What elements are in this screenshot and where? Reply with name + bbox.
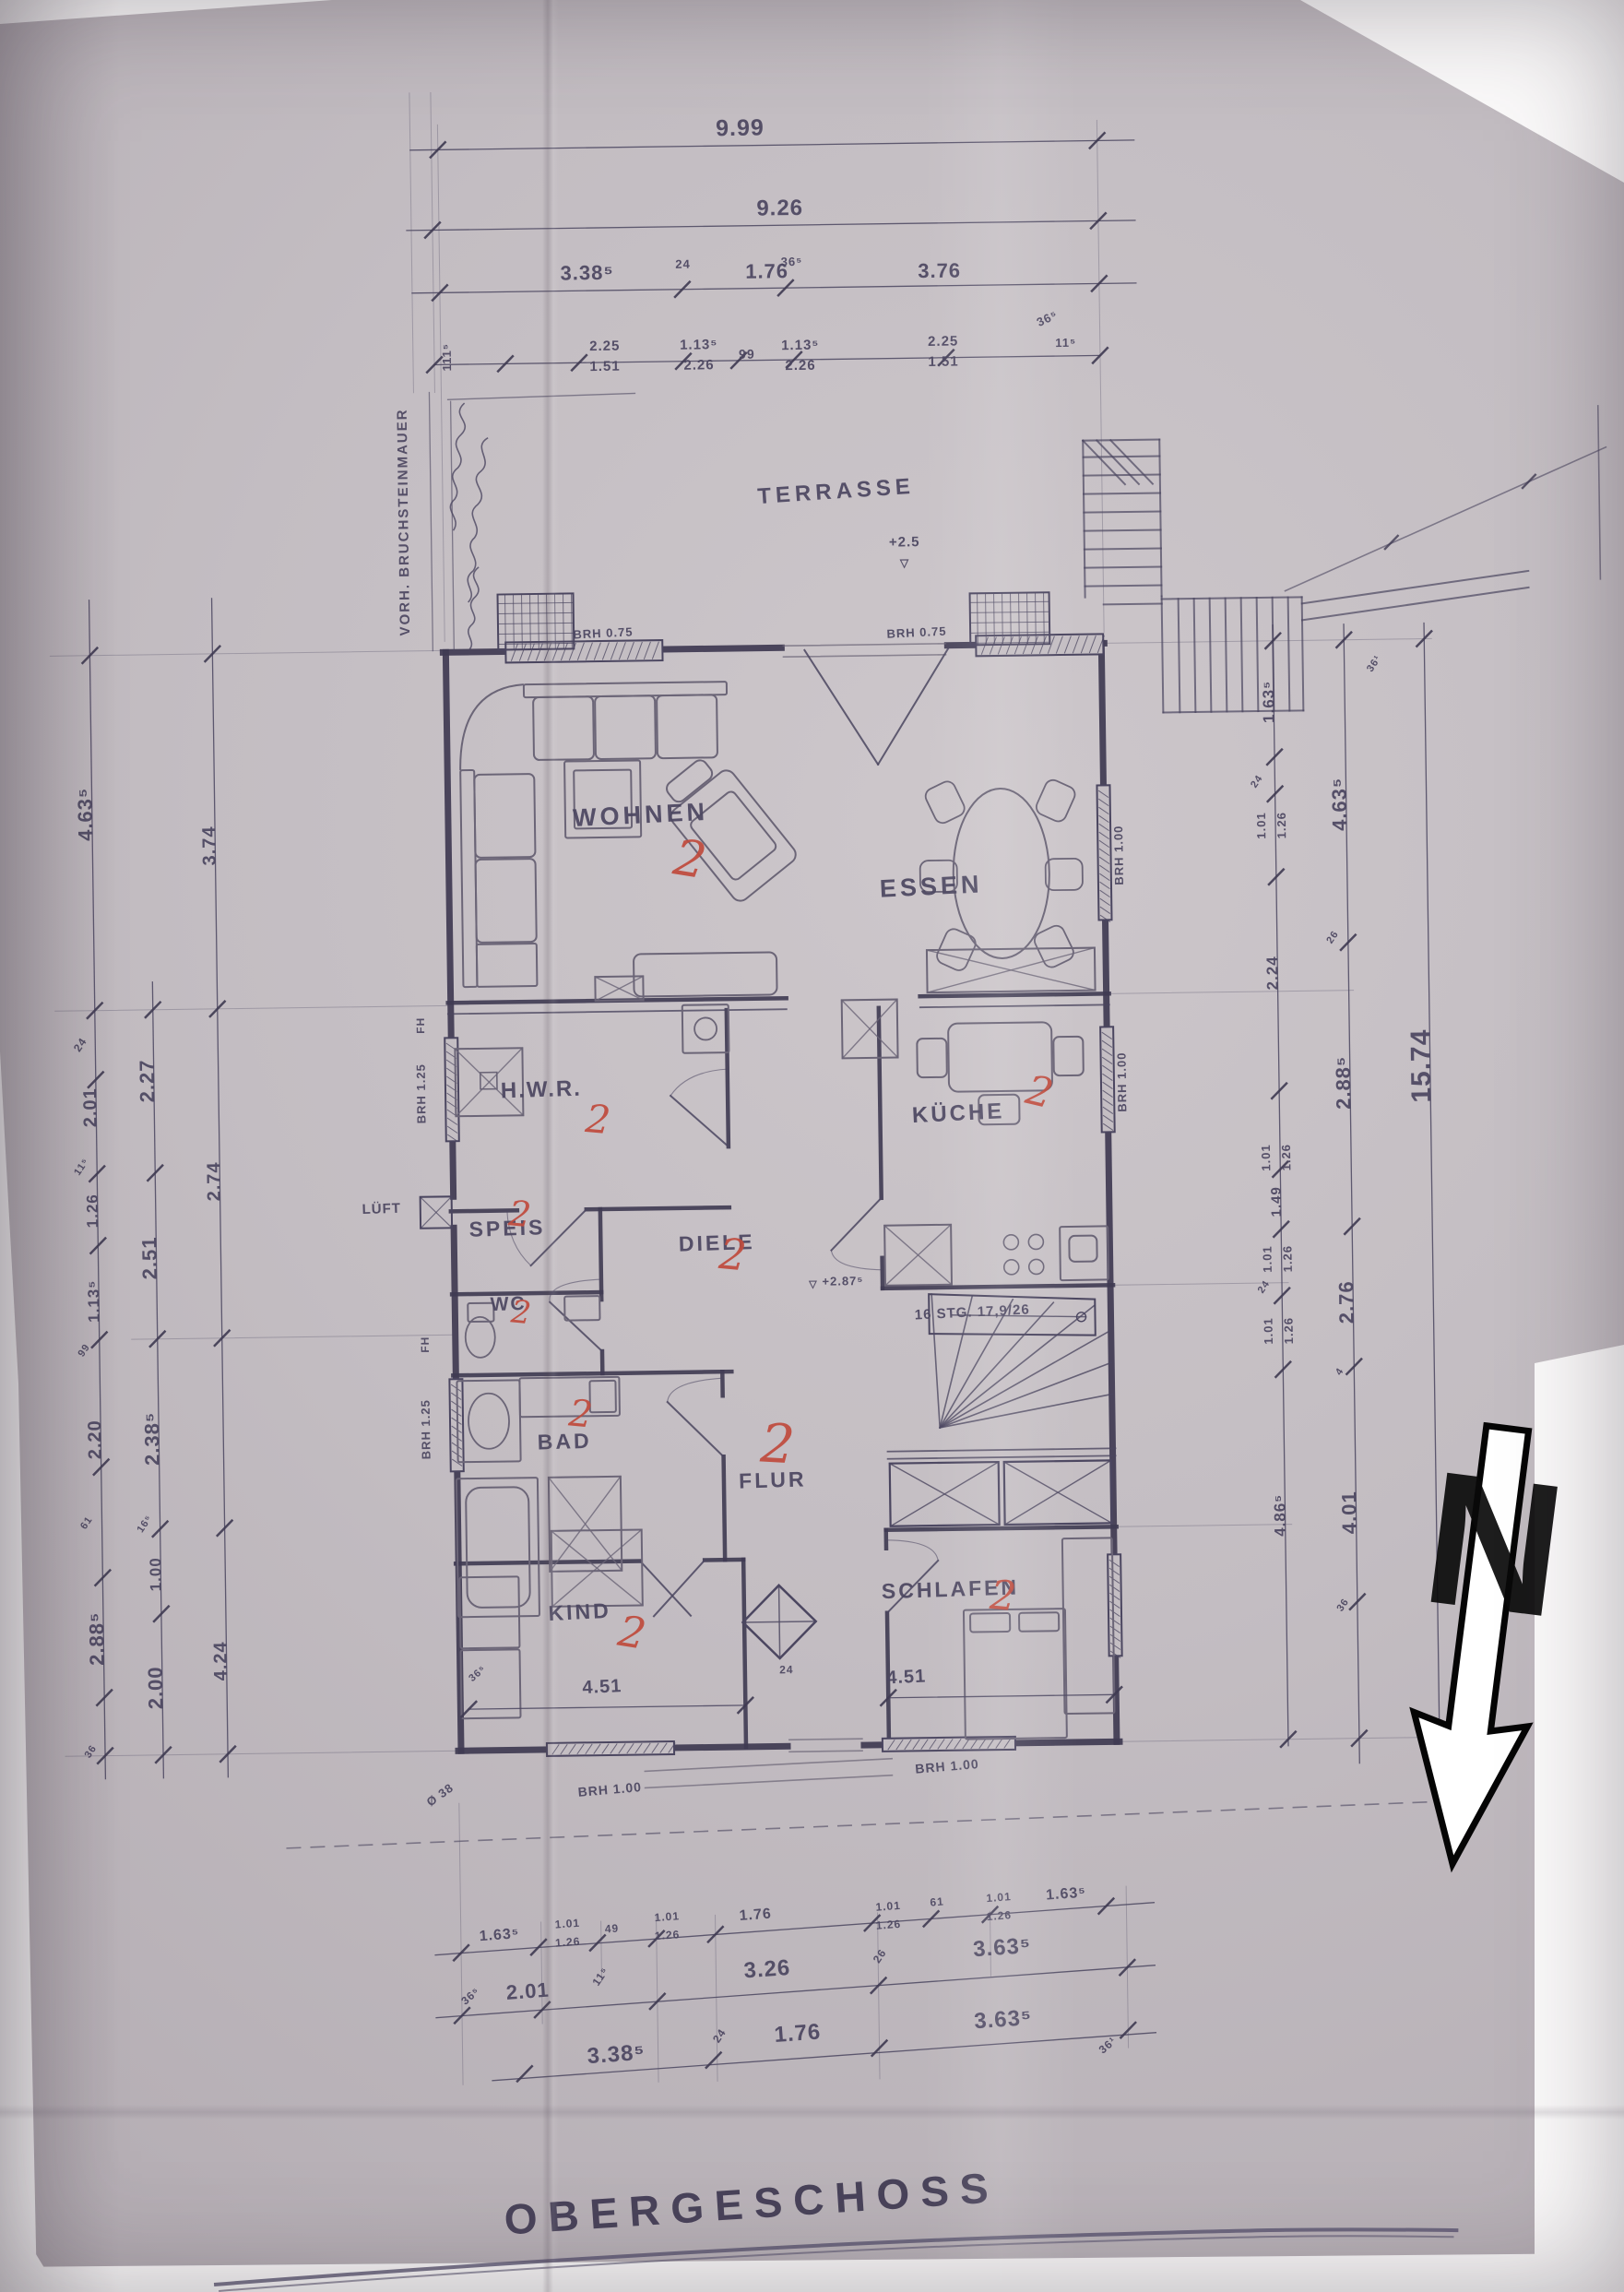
label-dims-d151: 1.51: [928, 354, 958, 370]
label-dims-d338a: 3.38⁵: [560, 261, 613, 285]
label-dims-d374: 3.74: [199, 825, 220, 865]
label-dims-d274: 2.74: [204, 1161, 225, 1201]
label-dims-s99: 99: [739, 347, 755, 362]
label-dims-d288: 2.88⁵: [1332, 1056, 1356, 1110]
label-notes-brh100: BRH 1.00: [1111, 825, 1126, 885]
label-rooms-kind: KIND: [548, 1598, 611, 1625]
label-rooms-lueft: LÜFT: [362, 1201, 401, 1217]
label-dims-d201: 2.01: [80, 1087, 101, 1127]
north-arrow: N: [1386, 1420, 1578, 1873]
label-dims-d201: 2.01: [505, 1978, 550, 2004]
title-underline: [213, 2227, 1459, 2291]
label-dims-s24a: 24: [1249, 773, 1265, 790]
label-notes-wall: VORH. BRUCHSTEINMAUER: [395, 408, 413, 635]
dimension-chains: [76, 128, 1452, 2086]
label-notes-brh125: BRH 1.25: [419, 1399, 433, 1459]
label-dims-d101: 1.01: [1254, 812, 1268, 839]
label-red_mark: 2: [1021, 1066, 1059, 1119]
label-dims-d338a: 3.38⁵: [587, 2040, 646, 2069]
plan-text-labels: OBERGESCHOSSTERRASSEWOHNENESSENH.W.R.KÜC…: [57, 105, 1452, 2250]
label-dims-d463: 4.63⁵: [1327, 778, 1351, 831]
label-notes-level2: +2.87⁵: [822, 1274, 863, 1289]
label-dims-s26: 26: [871, 1946, 889, 1965]
label-dims-s36a: 36⁵: [467, 1663, 488, 1683]
label-dims-d251: 2.51: [137, 1236, 161, 1279]
label-dims-s111: 111⁵: [440, 343, 454, 372]
label-rooms-wohnen: WOHNEN: [572, 798, 708, 832]
label-red_mark: 2: [717, 1229, 750, 1281]
label-dims-d224: 2.24: [1263, 956, 1282, 990]
label-dims-d363: 3.63⁵: [972, 1933, 1032, 1962]
label-dims-d238: 2.38⁵: [140, 1412, 164, 1466]
label-dims-d151: 1.51: [589, 359, 620, 374]
label-rooms-terrasse: TERRASSE: [757, 474, 916, 509]
label-dims-d126: 1.26: [84, 1194, 102, 1228]
label-dims-d101: 1.01: [1259, 1144, 1273, 1171]
witness-lines: [42, 78, 1452, 2090]
label-notes-brh125: BRH 1.25: [414, 1063, 429, 1123]
label-dims-s16b: 36¹: [1096, 2034, 1120, 2056]
label-dims-d126b: 1.26: [875, 1918, 901, 1932]
label-dims-d1574: 15.74: [1405, 1028, 1437, 1103]
staircases: [875, 406, 1621, 1526]
label-dims-s36c: 36: [1334, 1597, 1351, 1614]
label-dims-d926: 9.26: [756, 196, 803, 221]
label-dims-d225: 2.25: [589, 338, 620, 354]
label-dims-d363: 3.63⁵: [973, 2005, 1033, 2034]
label-dims-d126b: 1.26: [555, 1935, 581, 1950]
label-dims-s36a: 36⁵: [781, 255, 803, 268]
label-red_mark: 2: [583, 1096, 613, 1143]
label-red_mark: 2: [669, 827, 711, 890]
label-notes-brh075: BRH 0.75: [886, 624, 947, 641]
label-red_mark: 2: [758, 1411, 798, 1476]
label-dims-d113: 1.13⁵: [680, 337, 717, 353]
label-dims-d220: 2.20: [85, 1419, 106, 1459]
label-dims-d424: 4.24: [210, 1641, 231, 1680]
label-notes-fh: FH: [414, 1017, 427, 1034]
label-dims-s4: 4: [1334, 1366, 1346, 1378]
label-dims-d163: 1.63⁵: [1260, 681, 1278, 723]
label-title: OBERGESCHOSS: [503, 2163, 1001, 2244]
label-dims-d227: 2.27: [136, 1059, 160, 1102]
label-dims-d126b: 1.26: [1280, 1245, 1294, 1273]
label-notes-tri: ▽: [899, 556, 909, 569]
label-dims-d176a: 1.76: [774, 2019, 823, 2048]
label-notes-brh100: BRH 1.00: [915, 1756, 980, 1776]
label-dims-d486: 4.86⁵: [1271, 1494, 1289, 1537]
label-dims-d101: 1.01: [1262, 1317, 1275, 1345]
label-rooms-essen: ESSEN: [879, 870, 983, 902]
photographed-floor-plan: OBERGESCHOSSTERRASSEWOHNENESSENH.W.R.KÜC…: [0, 0, 1624, 2292]
label-notes-o38: Ø 38: [424, 1780, 456, 1809]
label-rooms-hwr: H.W.R.: [500, 1076, 582, 1104]
label-dims-s11: 11⁵: [589, 1965, 611, 1989]
label-dims-d113: 1.13⁵: [781, 338, 819, 354]
label-dims-d126b: 1.26: [1274, 812, 1288, 839]
label-dims-d126b: 1.26: [1282, 1317, 1296, 1345]
label-notes-level1: +2.5: [889, 534, 920, 550]
label-dims-d226: 2.26: [683, 357, 714, 373]
label-dims-d176a: 1.76: [739, 1906, 772, 1924]
label-dims-s61: 61: [78, 1514, 95, 1532]
label-north: N: [1414, 1431, 1577, 1657]
label-dims-d163: 1.63⁵: [479, 1926, 520, 1944]
label-red_mark: 2: [614, 1606, 651, 1659]
label-notes-brh075: BRH 0.75: [573, 624, 634, 641]
label-red_mark: 2: [506, 1193, 534, 1235]
label-dims-d225: 2.25: [928, 334, 958, 350]
label-dims-s24a: 24: [779, 1663, 794, 1676]
stone-wall-scribble: [429, 389, 638, 650]
label-dims-d451: 4.51: [582, 1676, 622, 1698]
label-dims-s49: 49: [604, 1921, 619, 1935]
windows: [439, 586, 1124, 1757]
label-dims-s24a: 24: [675, 257, 691, 271]
label-notes-brh100: BRH 1.00: [577, 1779, 643, 1799]
label-dims-s16b: 36¹: [1365, 653, 1384, 673]
label-dims-d226: 2.26: [785, 358, 815, 374]
label-dims-d999: 9.99: [716, 114, 765, 141]
label-notes-brh100: BRH 1.00: [1115, 1052, 1130, 1112]
label-dims-d326: 3.26: [743, 1955, 792, 1984]
label-dims-d126b: 1.26: [1279, 1144, 1293, 1171]
label-notes-fh: FH: [419, 1336, 432, 1353]
label-dims-d401: 4.01: [1337, 1490, 1361, 1534]
label-dims-s24a: 24: [710, 2026, 729, 2046]
label-dims-s36c: 36: [83, 1743, 100, 1761]
label-dims-d463: 4.63⁵: [73, 788, 97, 841]
label-dims-d100: 1.00: [147, 1557, 165, 1591]
label-dims-d101: 1.01: [654, 1909, 680, 1924]
label-dims-s24a: 24: [1256, 1278, 1273, 1296]
label-dims-s11: 11⁵: [72, 1157, 91, 1178]
label-dims-s36b: 36⁵: [1035, 307, 1061, 329]
label-notes-tri: ▽: [808, 1279, 818, 1290]
label-rooms-kueche: KÜCHE: [911, 1098, 1005, 1128]
floor-plan-drawing: OBERGESCHOSSTERRASSEWOHNENESSENH.W.R.KÜC…: [0, 0, 1624, 2292]
label-dims-s99: 99: [76, 1342, 92, 1360]
label-dims-d126b: 1.26: [654, 1928, 680, 1942]
label-red_mark: 2: [508, 1293, 533, 1332]
label-dims-d451: 4.51: [886, 1666, 927, 1688]
label-dims-d149: 1.49: [1269, 1186, 1285, 1217]
label-dims-s26: 26: [1324, 929, 1341, 946]
label-red_mark: 2: [987, 1572, 1018, 1621]
label-dims-s61: 61: [930, 1895, 944, 1909]
label-dims-d113: 1.13⁵: [85, 1280, 103, 1323]
label-red_mark: 2: [566, 1392, 596, 1436]
label-dims-d376: 3.76: [918, 259, 961, 283]
label-dims-s16: 16⁵: [135, 1513, 154, 1535]
label-dims-s24a: 24: [71, 1035, 89, 1054]
label-dims-s11: 11⁵: [1055, 336, 1076, 350]
label-dims-d200: 2.00: [144, 1666, 168, 1709]
label-dims-d126b: 1.26: [986, 1908, 1012, 1923]
label-dims-d276: 2.76: [1334, 1280, 1358, 1324]
door-swings: [499, 648, 962, 1619]
label-dims-d101: 1.01: [986, 1890, 1012, 1905]
label-dims-d101: 1.01: [875, 1899, 901, 1914]
label-dims-d101: 1.01: [1260, 1245, 1274, 1273]
label-dims-d163: 1.63⁵: [1046, 1885, 1087, 1904]
label-dims-d288: 2.88⁵: [85, 1611, 109, 1665]
label-dims-d101: 1.01: [554, 1917, 580, 1931]
